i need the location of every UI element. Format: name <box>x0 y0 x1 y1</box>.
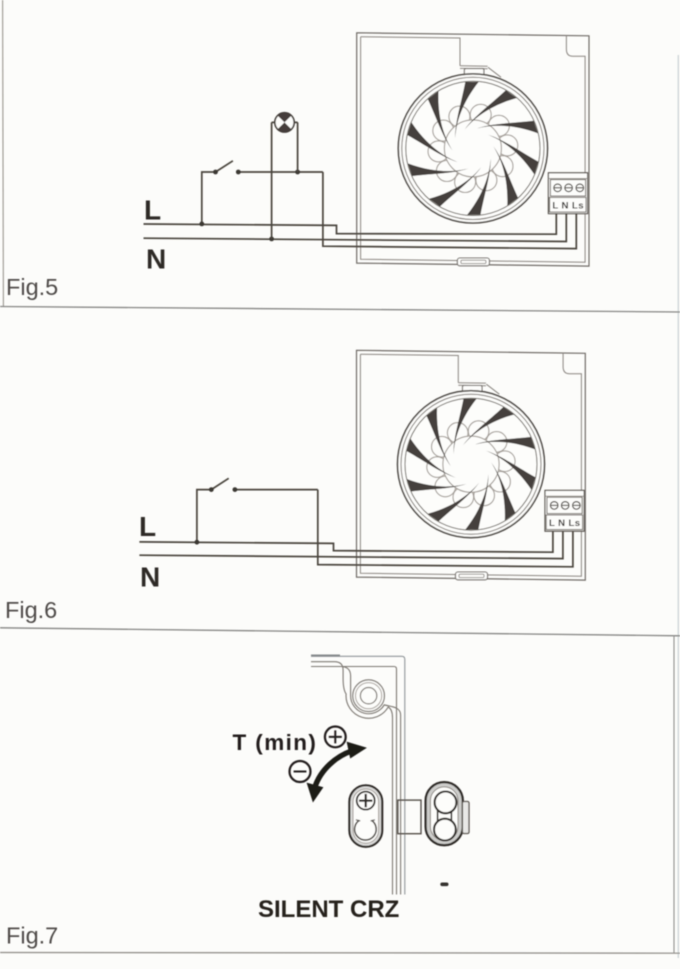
svg-text:SILENT CRZ: SILENT CRZ <box>258 896 399 923</box>
svg-text:Fig.6: Fig.6 <box>5 597 57 623</box>
svg-text:Fig.7: Fig.7 <box>6 923 58 949</box>
svg-text:L: L <box>139 511 156 542</box>
svg-text:L: L <box>144 195 161 226</box>
svg-text:T (min): T (min) <box>233 730 318 755</box>
svg-text:L N Ls: L N Ls <box>552 200 584 211</box>
svg-text:N: N <box>140 562 160 593</box>
svg-text:N: N <box>146 244 166 275</box>
svg-text:L N Ls: L N Ls <box>549 518 581 529</box>
svg-text:Fig.5: Fig.5 <box>6 274 58 300</box>
